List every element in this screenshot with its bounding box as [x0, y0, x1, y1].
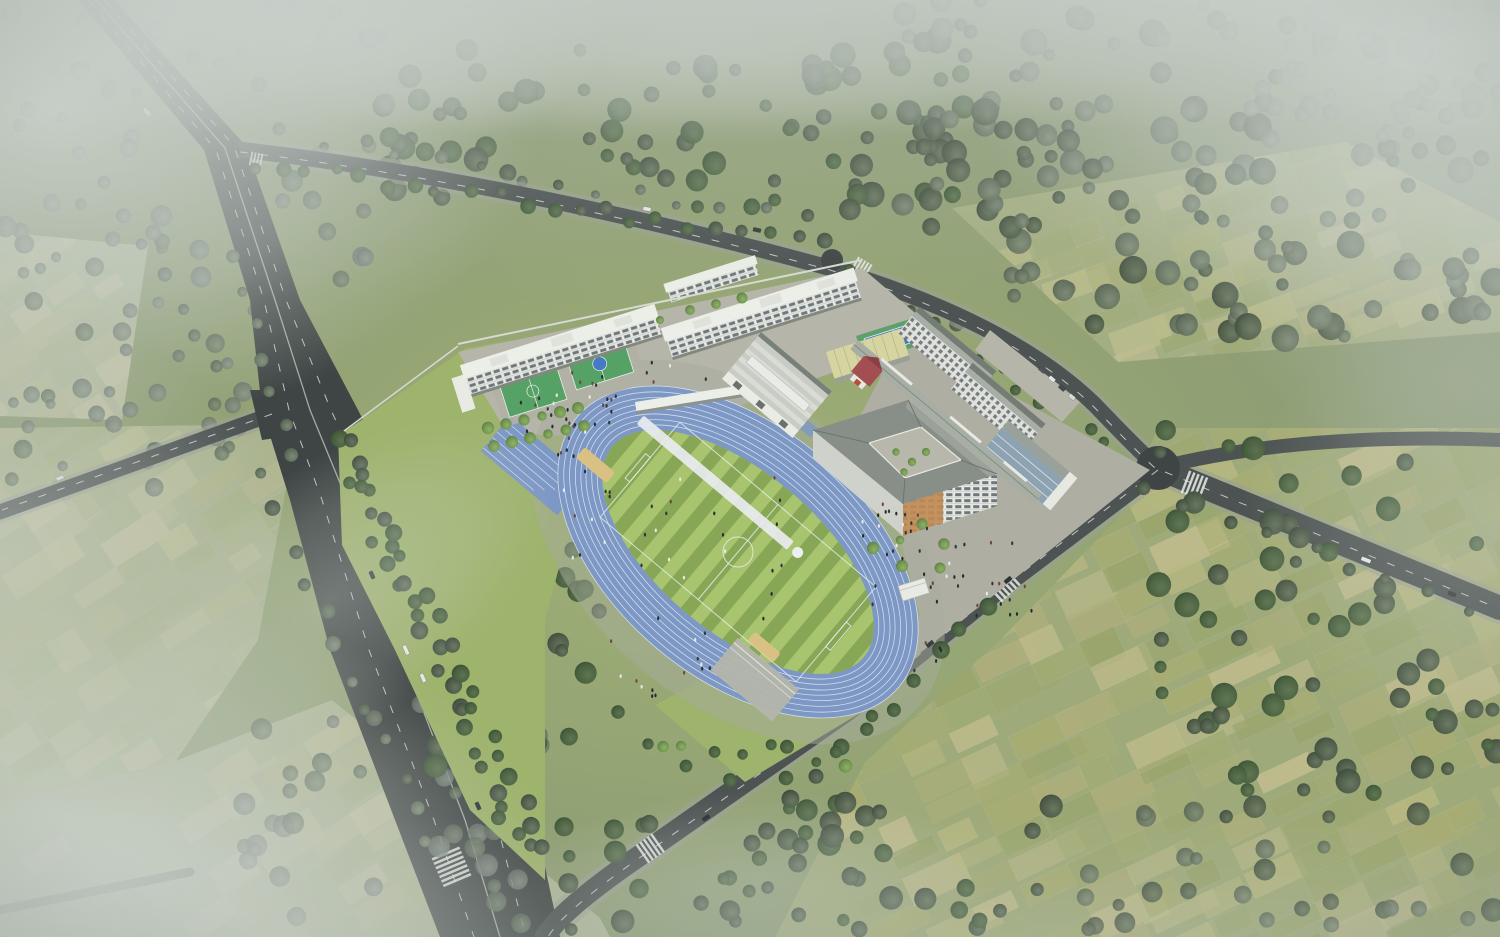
fog-layer	[0, 0, 1500, 937]
aerial-campus-rendering	[0, 0, 1500, 937]
scene-canvas	[0, 0, 1500, 937]
